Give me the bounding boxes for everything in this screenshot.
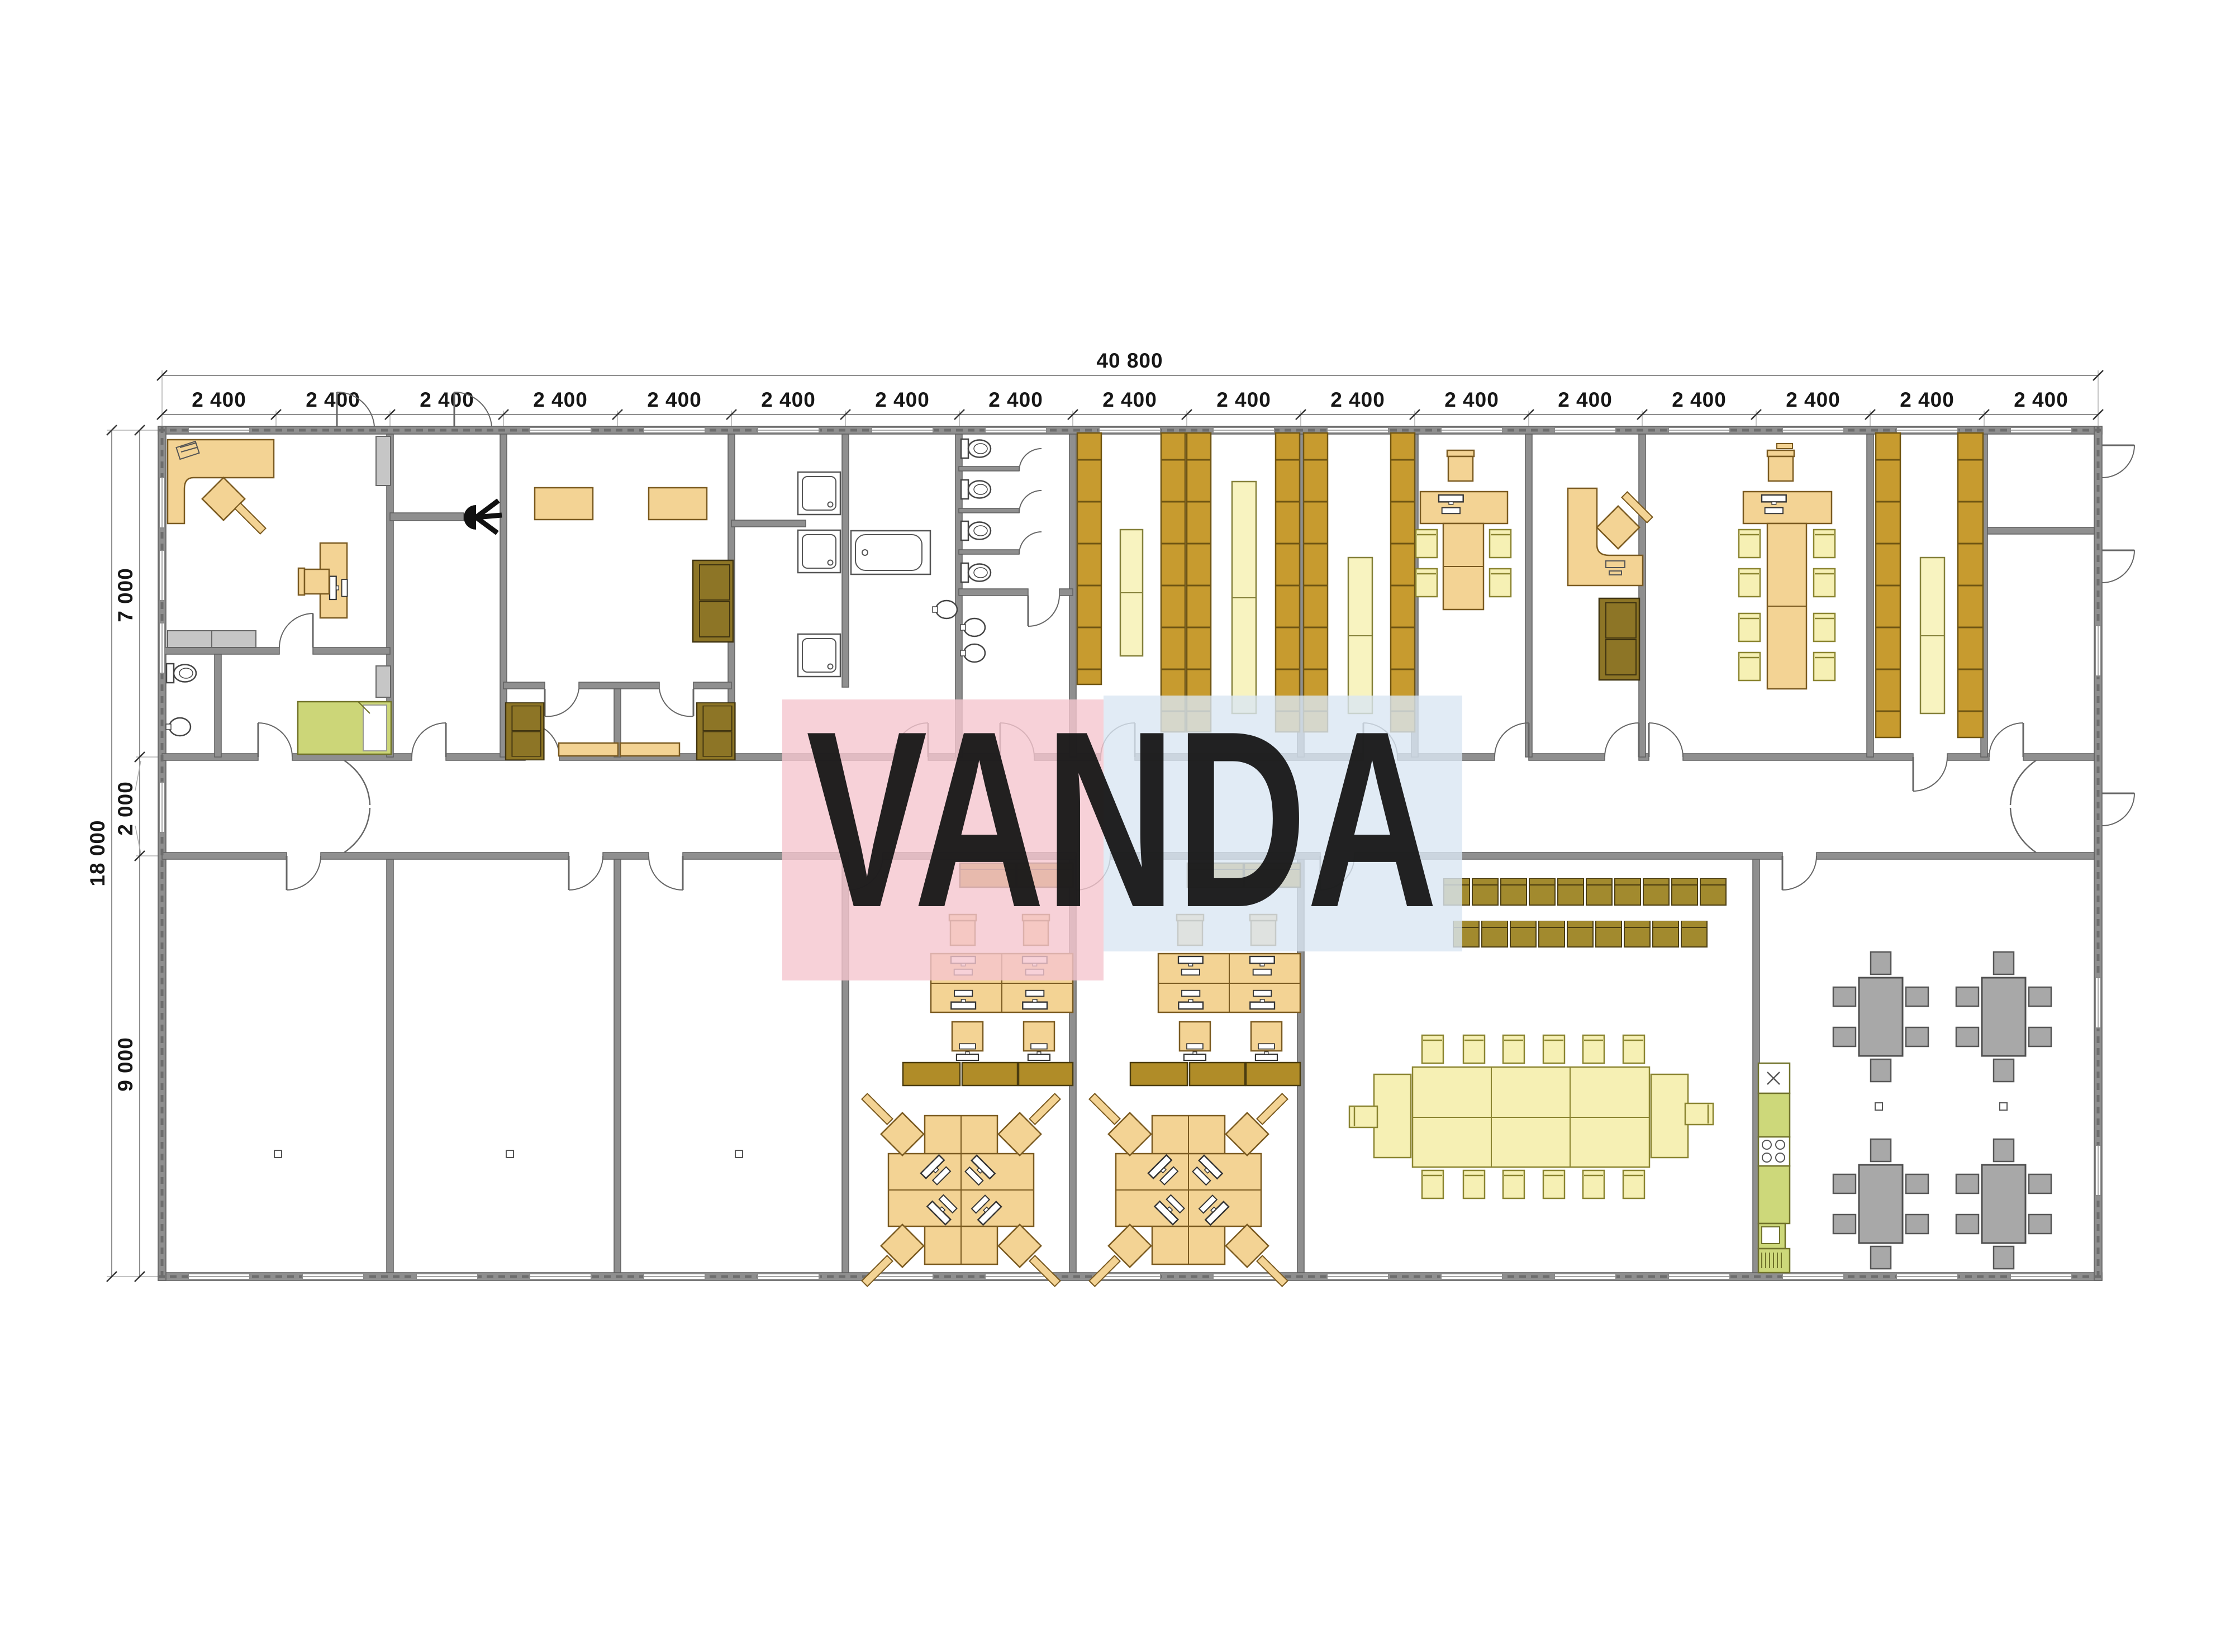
cabinet (376, 666, 391, 697)
chair (1814, 613, 1835, 641)
shower-icon (798, 634, 840, 677)
shower-icon (798, 530, 840, 573)
dining-room (1758, 952, 2051, 1273)
dimension-label: 2 400 (761, 388, 816, 411)
table-end (1651, 1074, 1688, 1158)
dining-table-set (1833, 1139, 1928, 1269)
chair-back (1777, 444, 1792, 449)
floor-mark (274, 1150, 282, 1158)
table (649, 488, 707, 520)
chair (1814, 569, 1835, 597)
dimension-label: 2 400 (1558, 388, 1613, 411)
floor-mark (2000, 1103, 2007, 1110)
chair (1422, 1035, 1443, 1063)
toilet-icon (961, 563, 991, 582)
dimension-label: 2 400 (647, 388, 702, 411)
dimension-label: 2 400 (875, 388, 930, 411)
toilet-icon (961, 439, 991, 458)
floor-mark (735, 1150, 743, 1158)
sink-icon (960, 618, 985, 636)
cooktop (1758, 1137, 1790, 1166)
chair (1503, 1035, 1524, 1063)
toilet-icon (961, 480, 991, 499)
sofa (506, 703, 544, 760)
shower-icon (798, 472, 840, 515)
sofa (697, 703, 735, 760)
medical-bed (298, 702, 391, 754)
chair (1416, 569, 1437, 597)
cabinet (376, 436, 391, 485)
room-meeting (1739, 444, 1835, 689)
dining-table-set (1833, 952, 1928, 1082)
chair (1739, 653, 1760, 680)
ceiling-light-icon (464, 501, 502, 533)
sofa (693, 560, 733, 642)
dimension-label: 2 400 (192, 388, 246, 411)
chair (1739, 569, 1760, 597)
chair (1814, 653, 1835, 680)
side-table (235, 503, 265, 534)
kitchen-counter (1758, 1093, 1790, 1137)
dimension-label: 2 400 (533, 388, 588, 411)
chair (1623, 1035, 1644, 1063)
chair (1739, 613, 1760, 641)
dimension-label: 2 400 (306, 388, 360, 411)
dimension-label: 2 400 (1786, 388, 1841, 411)
dimension-label: 2 400 (1444, 388, 1499, 411)
chair (1814, 530, 1835, 558)
room-office-1 (166, 436, 391, 754)
chair (1463, 1035, 1485, 1063)
watermark-text: VANDA (806, 679, 1438, 960)
desk-chair (1597, 506, 1639, 549)
dimension-label-left-7000: 7 000 (114, 568, 137, 622)
dimension-label: 2 400 (1330, 388, 1385, 411)
guest-chair (202, 478, 245, 520)
table (535, 488, 593, 520)
dimension-label: 2 400 (1102, 388, 1157, 411)
chair (1543, 1035, 1564, 1063)
chair (1543, 1170, 1564, 1198)
room-entry-hall (464, 501, 502, 533)
shelving-unit (1958, 433, 1983, 737)
floor-plan-canvas: 40 800 2 400 2 400 2 400 2 400 2 400 2 4… (0, 0, 2235, 1652)
chair (1490, 569, 1511, 597)
dining-table-set (1956, 952, 2051, 1082)
dimension-label: 2 400 (1672, 388, 1727, 411)
chair (1685, 1103, 1713, 1125)
table (620, 743, 679, 756)
desk-chair (1447, 450, 1474, 481)
dimension-label: 2 400 (1900, 388, 1955, 411)
kitchen-appliance (1762, 1227, 1780, 1244)
chair (1349, 1106, 1377, 1127)
dimension-label-total-height: 18 000 (86, 820, 109, 886)
chair (1623, 1170, 1644, 1198)
empty-rooms (274, 1150, 743, 1158)
locker-row (1443, 878, 1728, 906)
dimension-label: 2 400 (1216, 388, 1271, 411)
chair (1503, 1170, 1524, 1198)
desk-chair (298, 568, 329, 595)
desk (1743, 492, 1832, 523)
dimension-label-left-9000: 9 000 (114, 1037, 137, 1092)
dimension-label: 2 400 (420, 388, 474, 411)
dimension-label-left-2000: 2 000 (114, 781, 137, 836)
kitchen-strip (1758, 1063, 1790, 1273)
chair (1739, 530, 1760, 558)
floor-mark (1875, 1103, 1882, 1110)
chair (1583, 1170, 1604, 1198)
desk-chair (1767, 450, 1794, 481)
dimension-label-total-width: 40 800 (1096, 349, 1163, 372)
bathtub-icon (851, 531, 930, 574)
sofa (1599, 598, 1639, 680)
sink-icon (166, 718, 191, 736)
toilet-icon (167, 664, 196, 683)
shelving-unit (1077, 433, 1101, 684)
kitchen-cabinet (1758, 1166, 1790, 1223)
toilet-icon (961, 521, 991, 540)
chair (1490, 530, 1511, 558)
desk (1420, 492, 1508, 523)
floor-plan-page: 40 800 2 400 2 400 2 400 2 400 2 400 2 4… (0, 0, 2235, 1652)
locker-row (1453, 921, 1709, 948)
chair (1583, 1035, 1604, 1063)
room-office-a (1416, 450, 1511, 610)
room-shower (798, 472, 957, 677)
chair (1463, 1170, 1485, 1198)
chair (1422, 1170, 1443, 1198)
floor-mark (506, 1150, 513, 1158)
sink-icon (933, 601, 957, 618)
dimension-label: 2 400 (2014, 388, 2068, 411)
shelving-unit (1876, 433, 1900, 737)
chair (1416, 530, 1437, 558)
table (559, 743, 618, 756)
dining-table-set (1956, 1139, 2051, 1269)
table-end (1374, 1074, 1411, 1158)
dimension-label: 2 400 (988, 388, 1043, 411)
sink-icon (960, 644, 985, 662)
watermark: VANDA (782, 679, 1462, 980)
